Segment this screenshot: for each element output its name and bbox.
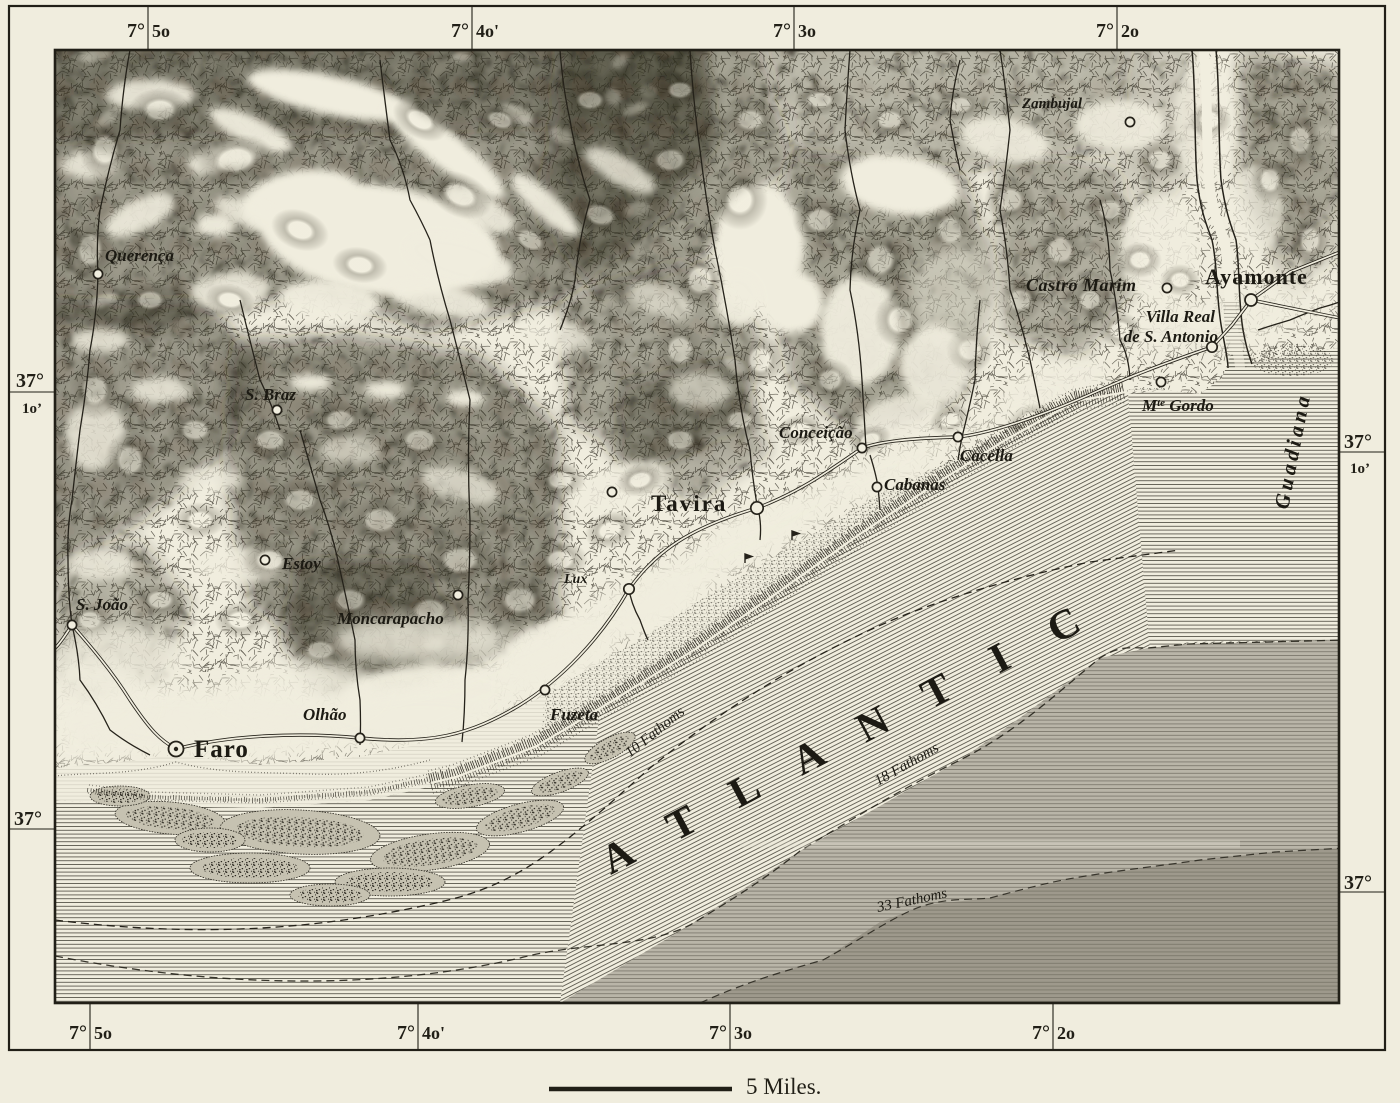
- svg-text:Querença: Querença: [105, 246, 174, 265]
- svg-text:7°: 7°: [773, 20, 791, 42]
- svg-text:Conceição: Conceição: [779, 423, 853, 442]
- svg-text:Ayamonte: Ayamonte: [1205, 264, 1308, 289]
- svg-text:7°: 7°: [1032, 1022, 1050, 1044]
- svg-text:Fuzeta: Fuzeta: [549, 705, 599, 724]
- svg-text:S. João: S. João: [76, 595, 128, 614]
- svg-text:de S. Antonio: de S. Antonio: [1124, 327, 1218, 346]
- svg-text:2o: 2o: [1057, 1023, 1075, 1043]
- svg-text:5o: 5o: [94, 1023, 112, 1043]
- svg-text:Faro: Faro: [194, 736, 249, 763]
- svg-text:Moncarapacho: Moncarapacho: [336, 609, 444, 628]
- svg-text:7°: 7°: [709, 1022, 727, 1044]
- svg-text:Villa Real: Villa Real: [1146, 307, 1216, 326]
- svg-text:37°: 37°: [1344, 431, 1372, 453]
- svg-text:7°: 7°: [127, 20, 145, 42]
- svg-text:7°: 7°: [1096, 20, 1114, 42]
- svg-text:7°: 7°: [397, 1022, 415, 1044]
- svg-text:4o': 4o': [422, 1023, 445, 1043]
- svg-text:37°: 37°: [1344, 872, 1372, 894]
- svg-text:Olhão: Olhão: [303, 705, 346, 724]
- svg-text:37°: 37°: [14, 808, 42, 830]
- svg-text:37°: 37°: [16, 370, 44, 392]
- svg-text:Cacella: Cacella: [960, 446, 1013, 465]
- svg-text:7°: 7°: [69, 1022, 87, 1044]
- svg-text:1o’: 1o’: [22, 401, 42, 417]
- svg-text:3o: 3o: [798, 21, 816, 41]
- svg-text:7°: 7°: [451, 20, 469, 42]
- svg-text:5o: 5o: [152, 21, 170, 41]
- svg-text:Mte Gordo: Mte Gordo: [1141, 396, 1214, 415]
- svg-text:5 Miles.: 5 Miles.: [746, 1074, 821, 1098]
- svg-text:4o': 4o': [476, 21, 499, 41]
- svg-text:Tavira: Tavira: [651, 491, 727, 516]
- svg-text:3o: 3o: [734, 1023, 752, 1043]
- svg-text:1o’: 1o’: [1350, 461, 1370, 477]
- svg-text:2o: 2o: [1121, 21, 1139, 41]
- svg-text:Cabanas: Cabanas: [884, 475, 946, 494]
- svg-text:S. Braz: S. Braz: [245, 385, 296, 404]
- svg-text:Zambujal: Zambujal: [1021, 96, 1083, 112]
- svg-text:Lux: Lux: [563, 572, 587, 587]
- svg-text:Estoy: Estoy: [281, 554, 321, 573]
- svg-text:Castro Marim: Castro Marim: [1026, 275, 1137, 295]
